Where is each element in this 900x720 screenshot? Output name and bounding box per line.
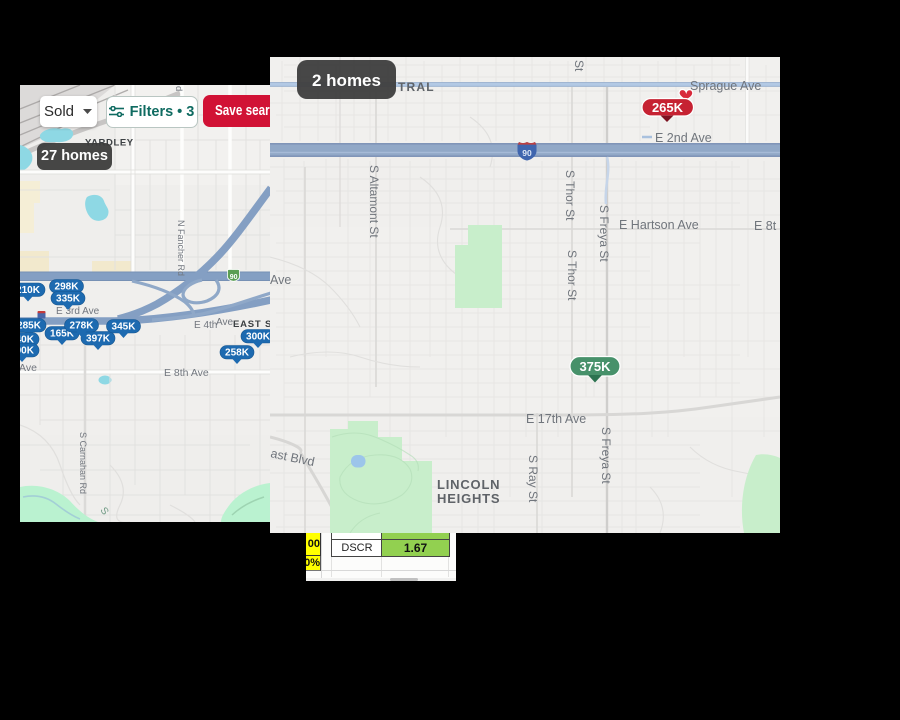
svg-text:EAST S: EAST S xyxy=(233,319,270,330)
svg-text:HEIGHTS: HEIGHTS xyxy=(437,491,500,506)
svg-text:90: 90 xyxy=(230,274,238,281)
svg-text:2 homes: 2 homes xyxy=(312,71,381,90)
svg-text:E 8t: E 8t xyxy=(754,219,777,233)
svg-text:S Ray St: S Ray St xyxy=(526,455,540,503)
svg-text:d: d xyxy=(173,86,184,91)
svg-text:LINCOLN: LINCOLN xyxy=(437,477,500,492)
svg-text:Ave: Ave xyxy=(20,362,37,374)
svg-text:90: 90 xyxy=(522,148,532,158)
svg-text:S Freya St: S Freya St xyxy=(599,427,613,484)
svg-text:335K: 335K xyxy=(56,294,81,305)
svg-text:S Thor St: S Thor St xyxy=(563,170,577,221)
svg-text:E 2nd Ave: E 2nd Ave xyxy=(655,131,712,145)
svg-text:298K: 298K xyxy=(55,282,80,293)
svg-text:E 17th Ave: E 17th Ave xyxy=(526,412,586,426)
svg-text:300K: 300K xyxy=(20,346,35,357)
svg-text:E Hartson Ave: E Hartson Ave xyxy=(619,218,699,232)
svg-text:S Freya St: S Freya St xyxy=(597,205,611,262)
svg-text:S Thor St: S Thor St xyxy=(565,250,579,301)
svg-text:E 4th: E 4th xyxy=(194,320,217,331)
svg-text:265K: 265K xyxy=(652,100,684,115)
svg-text:Ave: Ave xyxy=(270,273,291,287)
svg-text:TRAL: TRAL xyxy=(398,80,435,94)
svg-text:258K: 258K xyxy=(225,348,250,359)
svg-text:278K: 278K xyxy=(70,321,95,332)
svg-text:345K: 345K xyxy=(112,322,137,333)
svg-text:397K: 397K xyxy=(86,334,111,345)
svg-text:210K: 210K xyxy=(20,285,41,296)
svg-text:375K: 375K xyxy=(579,359,611,374)
svg-text:S Altamont St: S Altamont St xyxy=(367,165,381,238)
svg-text:E 8th Ave: E 8th Ave xyxy=(164,367,209,379)
svg-text:Sprague Ave: Sprague Ave xyxy=(690,79,761,93)
svg-text:300K: 300K xyxy=(246,332,270,343)
svg-text:N Fancher Rd: N Fancher Rd xyxy=(176,220,186,276)
svg-text:St: St xyxy=(572,60,586,72)
svg-text:S Carnahan Rd: S Carnahan Rd xyxy=(78,432,88,494)
svg-text:285K: 285K xyxy=(20,321,42,332)
svg-text:E 3rd Ave: E 3rd Ave xyxy=(56,306,100,317)
svg-text:Ave: Ave xyxy=(216,317,233,328)
